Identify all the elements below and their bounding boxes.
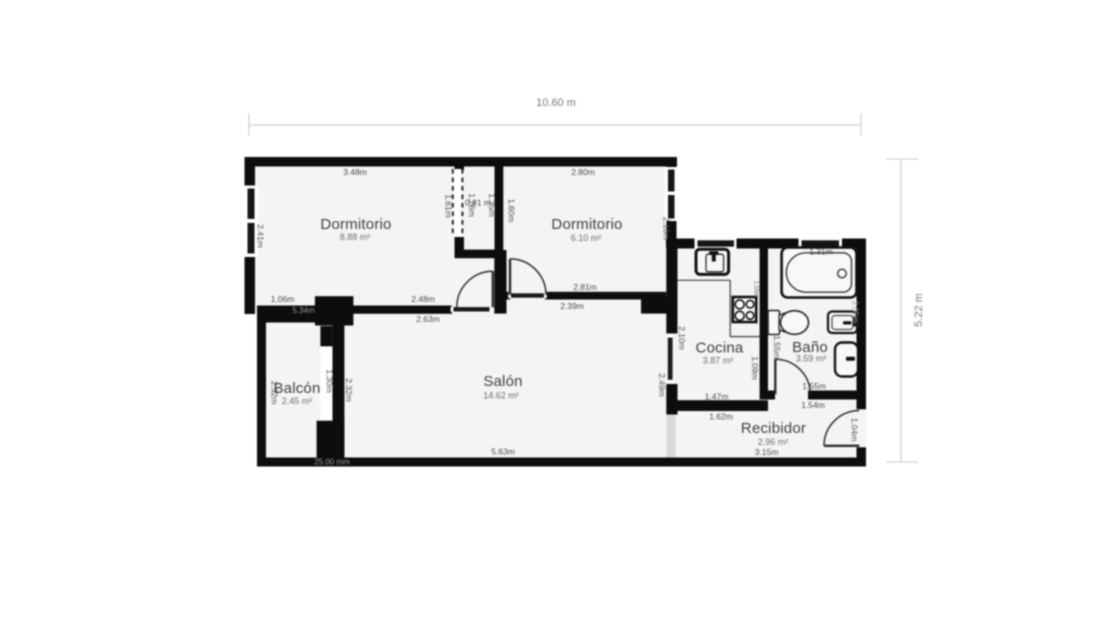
svg-text:5.22 m: 5.22 m	[913, 293, 925, 327]
svg-text:1.09m: 1.09m	[750, 356, 760, 380]
svg-text:2.49m: 2.49m	[657, 373, 667, 397]
svg-text:2.45 m²: 2.45 m²	[282, 396, 313, 406]
svg-text:Dormitorio: Dormitorio	[551, 216, 622, 233]
svg-text:2.05m: 2.05m	[851, 301, 860, 324]
svg-text:1.55m: 1.55m	[772, 335, 782, 359]
svg-text:25.00 mm: 25.00 mm	[314, 458, 350, 467]
svg-text:1.04m: 1.04m	[850, 418, 860, 442]
svg-text:2.39m: 2.39m	[560, 301, 584, 311]
svg-text:3.15m: 3.15m	[755, 447, 779, 457]
svg-text:3.48m: 3.48m	[343, 167, 367, 177]
svg-text:1.55m: 1.55m	[753, 281, 759, 298]
svg-text:1.35m: 1.35m	[487, 193, 497, 217]
svg-text:1.55m: 1.55m	[802, 381, 826, 391]
svg-text:1.61m: 1.61m	[444, 194, 454, 218]
svg-text:5.63m: 5.63m	[491, 447, 515, 457]
svg-text:1.06m: 1.06m	[271, 294, 295, 304]
svg-text:Recibidor: Recibidor	[741, 420, 806, 437]
svg-text:1.60m: 1.60m	[507, 199, 517, 223]
svg-text:8.88 m²: 8.88 m²	[340, 232, 371, 242]
svg-text:5.34m: 5.34m	[292, 306, 315, 315]
svg-text:2.80m: 2.80m	[571, 167, 595, 177]
svg-text:1.26m: 1.26m	[467, 193, 477, 217]
svg-text:2.81m: 2.81m	[573, 282, 597, 292]
svg-text:Cocina: Cocina	[696, 340, 744, 357]
svg-text:Salón: Salón	[483, 373, 522, 390]
svg-text:2.41m: 2.41m	[256, 224, 266, 248]
svg-text:6.10 m²: 6.10 m²	[571, 233, 602, 243]
svg-text:2.96 m²: 2.96 m²	[758, 437, 789, 447]
svg-text:Balcón: Balcón	[273, 380, 320, 397]
svg-text:1.62m: 1.62m	[709, 412, 733, 422]
svg-text:2.18m: 2.18m	[662, 217, 672, 241]
svg-text:1.30m: 1.30m	[325, 369, 335, 393]
svg-text:2.63m: 2.63m	[416, 314, 440, 324]
svg-text:1.47m: 1.47m	[705, 392, 729, 402]
svg-text:2.32m: 2.32m	[270, 381, 280, 405]
svg-text:1.31m: 1.31m	[809, 247, 833, 257]
svg-text:3.87 m²: 3.87 m²	[703, 356, 734, 366]
svg-text:Dormitorio: Dormitorio	[320, 216, 391, 233]
svg-text:1.54m: 1.54m	[801, 400, 825, 410]
svg-text:14.62 m²: 14.62 m²	[483, 391, 519, 401]
svg-text:2.10m: 2.10m	[677, 326, 687, 350]
svg-text:2.32m: 2.32m	[344, 378, 354, 402]
svg-text:2.48m: 2.48m	[411, 294, 435, 304]
svg-text:10.60 m: 10.60 m	[536, 97, 576, 109]
svg-text:3.59 m²: 3.59 m²	[796, 354, 827, 364]
